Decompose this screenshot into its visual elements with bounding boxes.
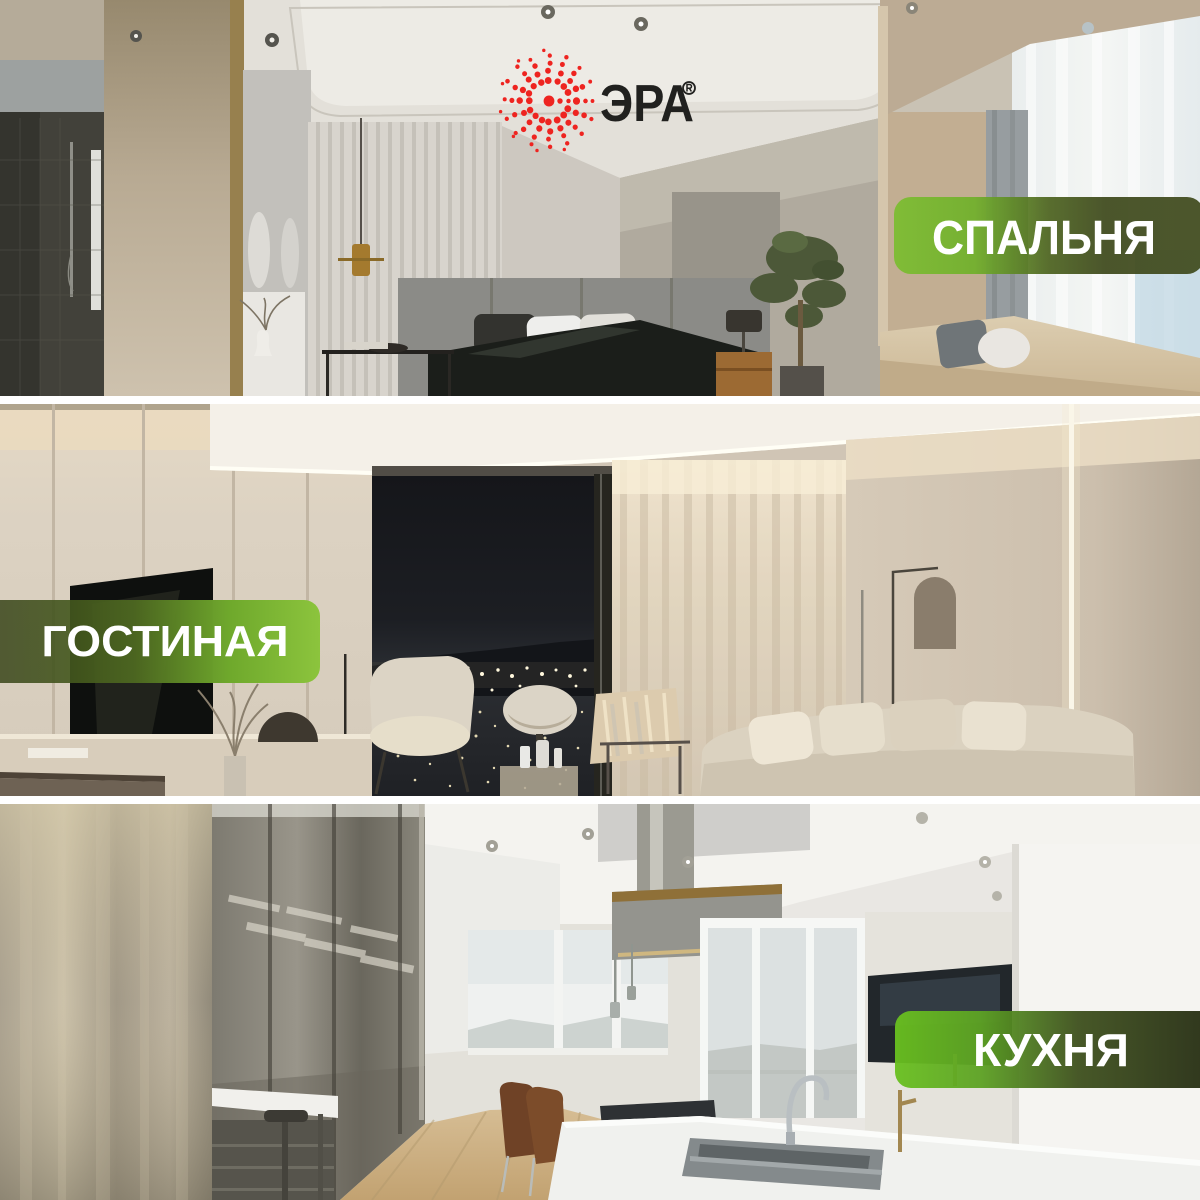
svg-text:СПАЛЬНЯ: СПАЛЬНЯ <box>932 211 1156 265</box>
svg-text:КУХНЯ: КУХНЯ <box>973 1024 1129 1076</box>
svg-text:ЭРА: ЭРА <box>600 75 694 133</box>
svg-text:ГОСТИНАЯ: ГОСТИНАЯ <box>42 618 289 666</box>
